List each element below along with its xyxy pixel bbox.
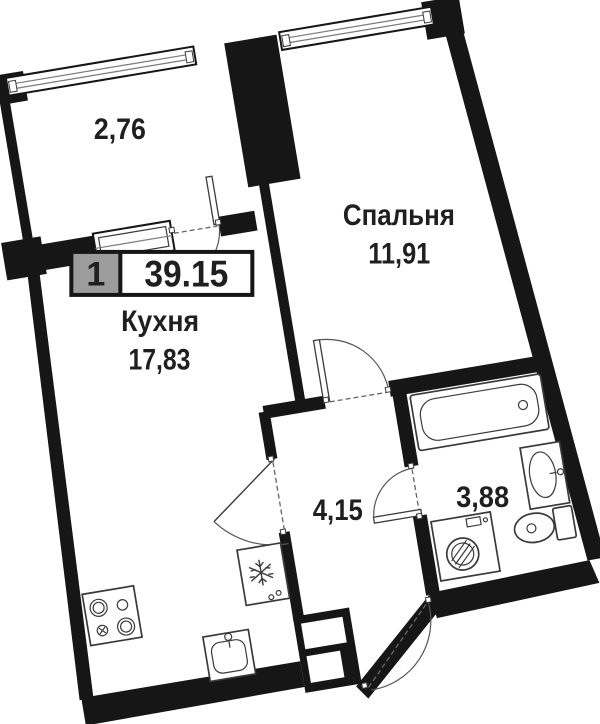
- stove-icon: [82, 586, 142, 646]
- balcony-door-stub-wall: [218, 211, 258, 237]
- floor-plan: 1 39.15 2,76 Спальня 11,91 Кухня 17,83 4…: [0, 0, 600, 724]
- balcony-window: [6, 47, 196, 96]
- kitchen-area-label: 17,83: [128, 343, 190, 376]
- kitchen-door-threshold: [273, 462, 284, 530]
- bedroom-name-label: Спальня: [343, 199, 455, 232]
- badge-rooms-count: 1: [86, 255, 105, 293]
- floor-plan-page: 1 39.15 2,76 Спальня 11,91 Кухня 17,83 4…: [0, 0, 600, 724]
- badge-total-area: 39.15: [144, 253, 228, 294]
- kitchen-bedroom-wall: [258, 180, 305, 405]
- kitchen-name-label: Кухня: [121, 305, 199, 338]
- hallway-area-label: 4,15: [313, 494, 363, 527]
- balcony-door-threshold: [174, 226, 217, 233]
- bedroom-area-label: 11,91: [368, 237, 430, 270]
- balcony-window-cap-right: [185, 51, 194, 63]
- balcony-left-wall: [0, 78, 35, 253]
- bedroom-door-threshold: [330, 392, 387, 402]
- toilet-icon: [512, 510, 556, 545]
- plan-rotated-group: 1 39.15 2,76 Спальня 11,91 Кухня 17,83 4…: [0, 0, 600, 724]
- balcony-bedroom-block: [224, 35, 300, 188]
- balcony-window-cap-left: [9, 80, 18, 92]
- kitchen-hallway-wall-upper: [259, 411, 278, 460]
- bedroom-door-leaf: [313, 340, 329, 402]
- area-badge: 1 39.15: [69, 250, 254, 297]
- bathroom-area-label: 3,88: [456, 481, 509, 514]
- shaft-slot-2: [306, 651, 344, 683]
- bedroom-window: [279, 7, 434, 50]
- room-labels: 2,76 Спальня 11,91 Кухня 17,83 4,15 3,88: [84, 55, 515, 572]
- balcony-door-leaf: [206, 176, 220, 224]
- bathroom-door-threshold: [412, 469, 419, 513]
- bedroom-window-cap-right: [423, 11, 432, 23]
- hallway-top-stub-wall: [263, 396, 326, 419]
- balcony-area-label: 2,76: [94, 113, 146, 146]
- kitchen-bottom-wall: [81, 661, 305, 724]
- kitchen-door-leaf: [205, 459, 283, 522]
- bedroom-window-cap-left: [282, 35, 291, 47]
- toilet-tank: [552, 505, 576, 540]
- kitchen-sink-icon: [203, 629, 256, 681]
